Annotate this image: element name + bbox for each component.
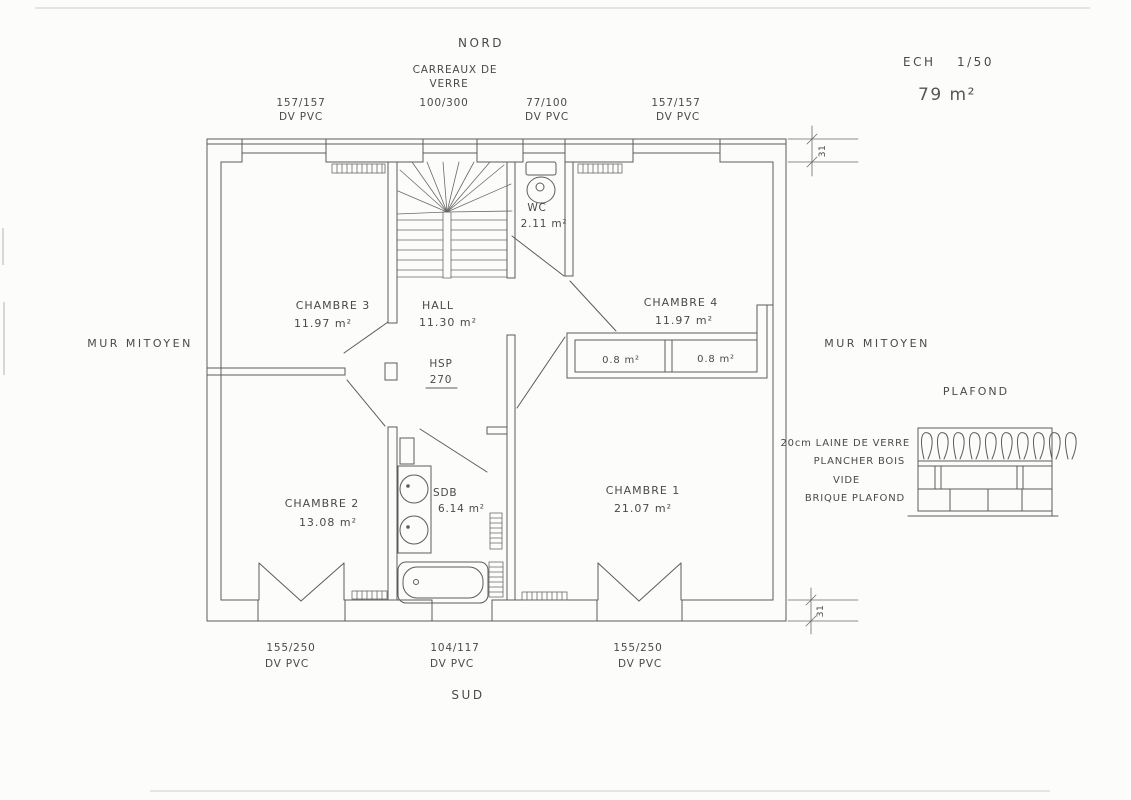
- wall-dim-bottom: 31: [816, 605, 826, 617]
- sink-counter-icon: [398, 438, 431, 553]
- room-label-chambre1: CHAMBRE 1: [606, 484, 681, 497]
- window-size-bottom-center: 104/117: [430, 642, 479, 654]
- ceiling-layer-3: VIDE: [833, 475, 860, 486]
- room-area-chambre2: 13.08 m²: [299, 516, 357, 529]
- scan-artifacts: [3, 8, 1090, 791]
- room-area-wc: 2.11 m²: [521, 218, 568, 230]
- glass-block-material-line1: CARREAUX DE: [413, 64, 498, 76]
- room-area-hall: 11.30 m²: [419, 316, 477, 329]
- wall-dim-top: 31: [818, 145, 828, 157]
- floor-plan-scan: NORD CARREAUX DE VERRE 100/300 157/157 D…: [0, 0, 1131, 800]
- window-size-bottom-right: 155/250: [613, 642, 662, 654]
- ceiling-detail-drawing: [908, 428, 1076, 516]
- toilet-icon: [526, 162, 556, 203]
- casement-window-symbol-chambre1: [598, 563, 681, 601]
- bathtub-icon: [398, 562, 488, 603]
- floor-plan-drawing: NORD CARREAUX DE VERRE 100/300 157/157 D…: [0, 0, 1131, 800]
- door-swing-wc: [512, 236, 564, 276]
- door-swing-chambre2: [347, 380, 385, 426]
- room-label-hall: HALL: [422, 299, 454, 312]
- room-area-sdb: 6.14 m²: [438, 503, 485, 515]
- ceiling-height-value: 270: [430, 374, 452, 386]
- radiator-icon-chambre3: [332, 164, 385, 173]
- window-type-top-wc: DV PVC: [525, 111, 569, 123]
- room-label-chambre2: CHAMBRE 2: [285, 497, 360, 510]
- ceiling-layer-4: BRIQUE PLAFOND: [805, 493, 905, 504]
- room-label-chambre3: CHAMBRE 3: [296, 299, 371, 312]
- room-area-chambre4: 11.97 m²: [655, 314, 713, 327]
- brick-joints: [950, 489, 1022, 511]
- window-size-top-left: 157/157: [276, 97, 325, 109]
- casement-window-symbol-chambre2: [259, 563, 344, 601]
- room-label-chambre4: CHAMBRE 4: [644, 296, 719, 309]
- south-label: SUD: [451, 688, 484, 702]
- window-size-top-wc: 77/100: [526, 97, 568, 109]
- room-label-sdb: SDB: [433, 487, 457, 499]
- window-type-top-left: DV PVC: [279, 111, 323, 123]
- closet-area-right: 0.8 m²: [697, 354, 735, 365]
- scale-label: ECH: [903, 55, 935, 69]
- window-size-top-right: 157/157: [651, 97, 700, 109]
- party-wall-left-label: MUR MITOYEN: [87, 337, 193, 350]
- window-type-bottom-center: DV PVC: [430, 658, 474, 670]
- bottom-window-symbols: [258, 563, 682, 621]
- ceiling-layer-1: 20cm LAINE DE VERRE: [781, 438, 910, 449]
- door-swing-chambre1: [517, 337, 565, 408]
- party-wall-right-label: MUR MITOYEN: [824, 337, 930, 350]
- glass-block-material-line2: VERRE: [429, 78, 468, 90]
- ceiling-detail-title: PLAFOND: [943, 385, 1009, 398]
- room-area-chambre1: 21.07 m²: [614, 502, 672, 515]
- window-type-bottom-left: DV PVC: [265, 658, 309, 670]
- room-area-chambre3: 11.97 m²: [294, 317, 352, 330]
- cabinet-icon: [400, 438, 414, 464]
- radiator-icon-sdb-upper: [490, 513, 502, 549]
- north-label: NORD: [458, 36, 504, 50]
- window-type-top-right: DV PVC: [656, 111, 700, 123]
- labels: NORD CARREAUX DE VERRE 100/300 157/157 D…: [87, 36, 1009, 702]
- interior-walls: [207, 162, 573, 600]
- room-label-wc: WC: [527, 202, 546, 214]
- scale-value: 1/50: [957, 55, 994, 69]
- ceiling-layer-2: PLANCHER BOIS: [814, 456, 905, 467]
- staircase: [397, 162, 512, 278]
- window-type-bottom-right: DV PVC: [618, 658, 662, 670]
- radiator-icon-chambre4: [578, 164, 622, 173]
- closet-area-left: 0.8 m²: [602, 355, 640, 366]
- radiator-icons: [332, 164, 622, 600]
- top-window-symbols: [242, 139, 720, 162]
- radiator-icon-chambre2: [352, 591, 387, 599]
- window-size-glass-block: 100/300: [419, 97, 468, 109]
- door-post: [385, 363, 397, 380]
- joist-lines: [935, 466, 1023, 489]
- radiator-icon-sdb-lower: [489, 562, 503, 597]
- ceiling-height-label: HSP: [429, 358, 452, 370]
- window-size-bottom-left: 155/250: [266, 642, 315, 654]
- radiator-icon-chambre1: [522, 592, 567, 600]
- total-area: 79 m²: [918, 85, 976, 105]
- glass-wool-hatch: [921, 433, 1076, 459]
- door-swing-chambre4: [570, 281, 616, 331]
